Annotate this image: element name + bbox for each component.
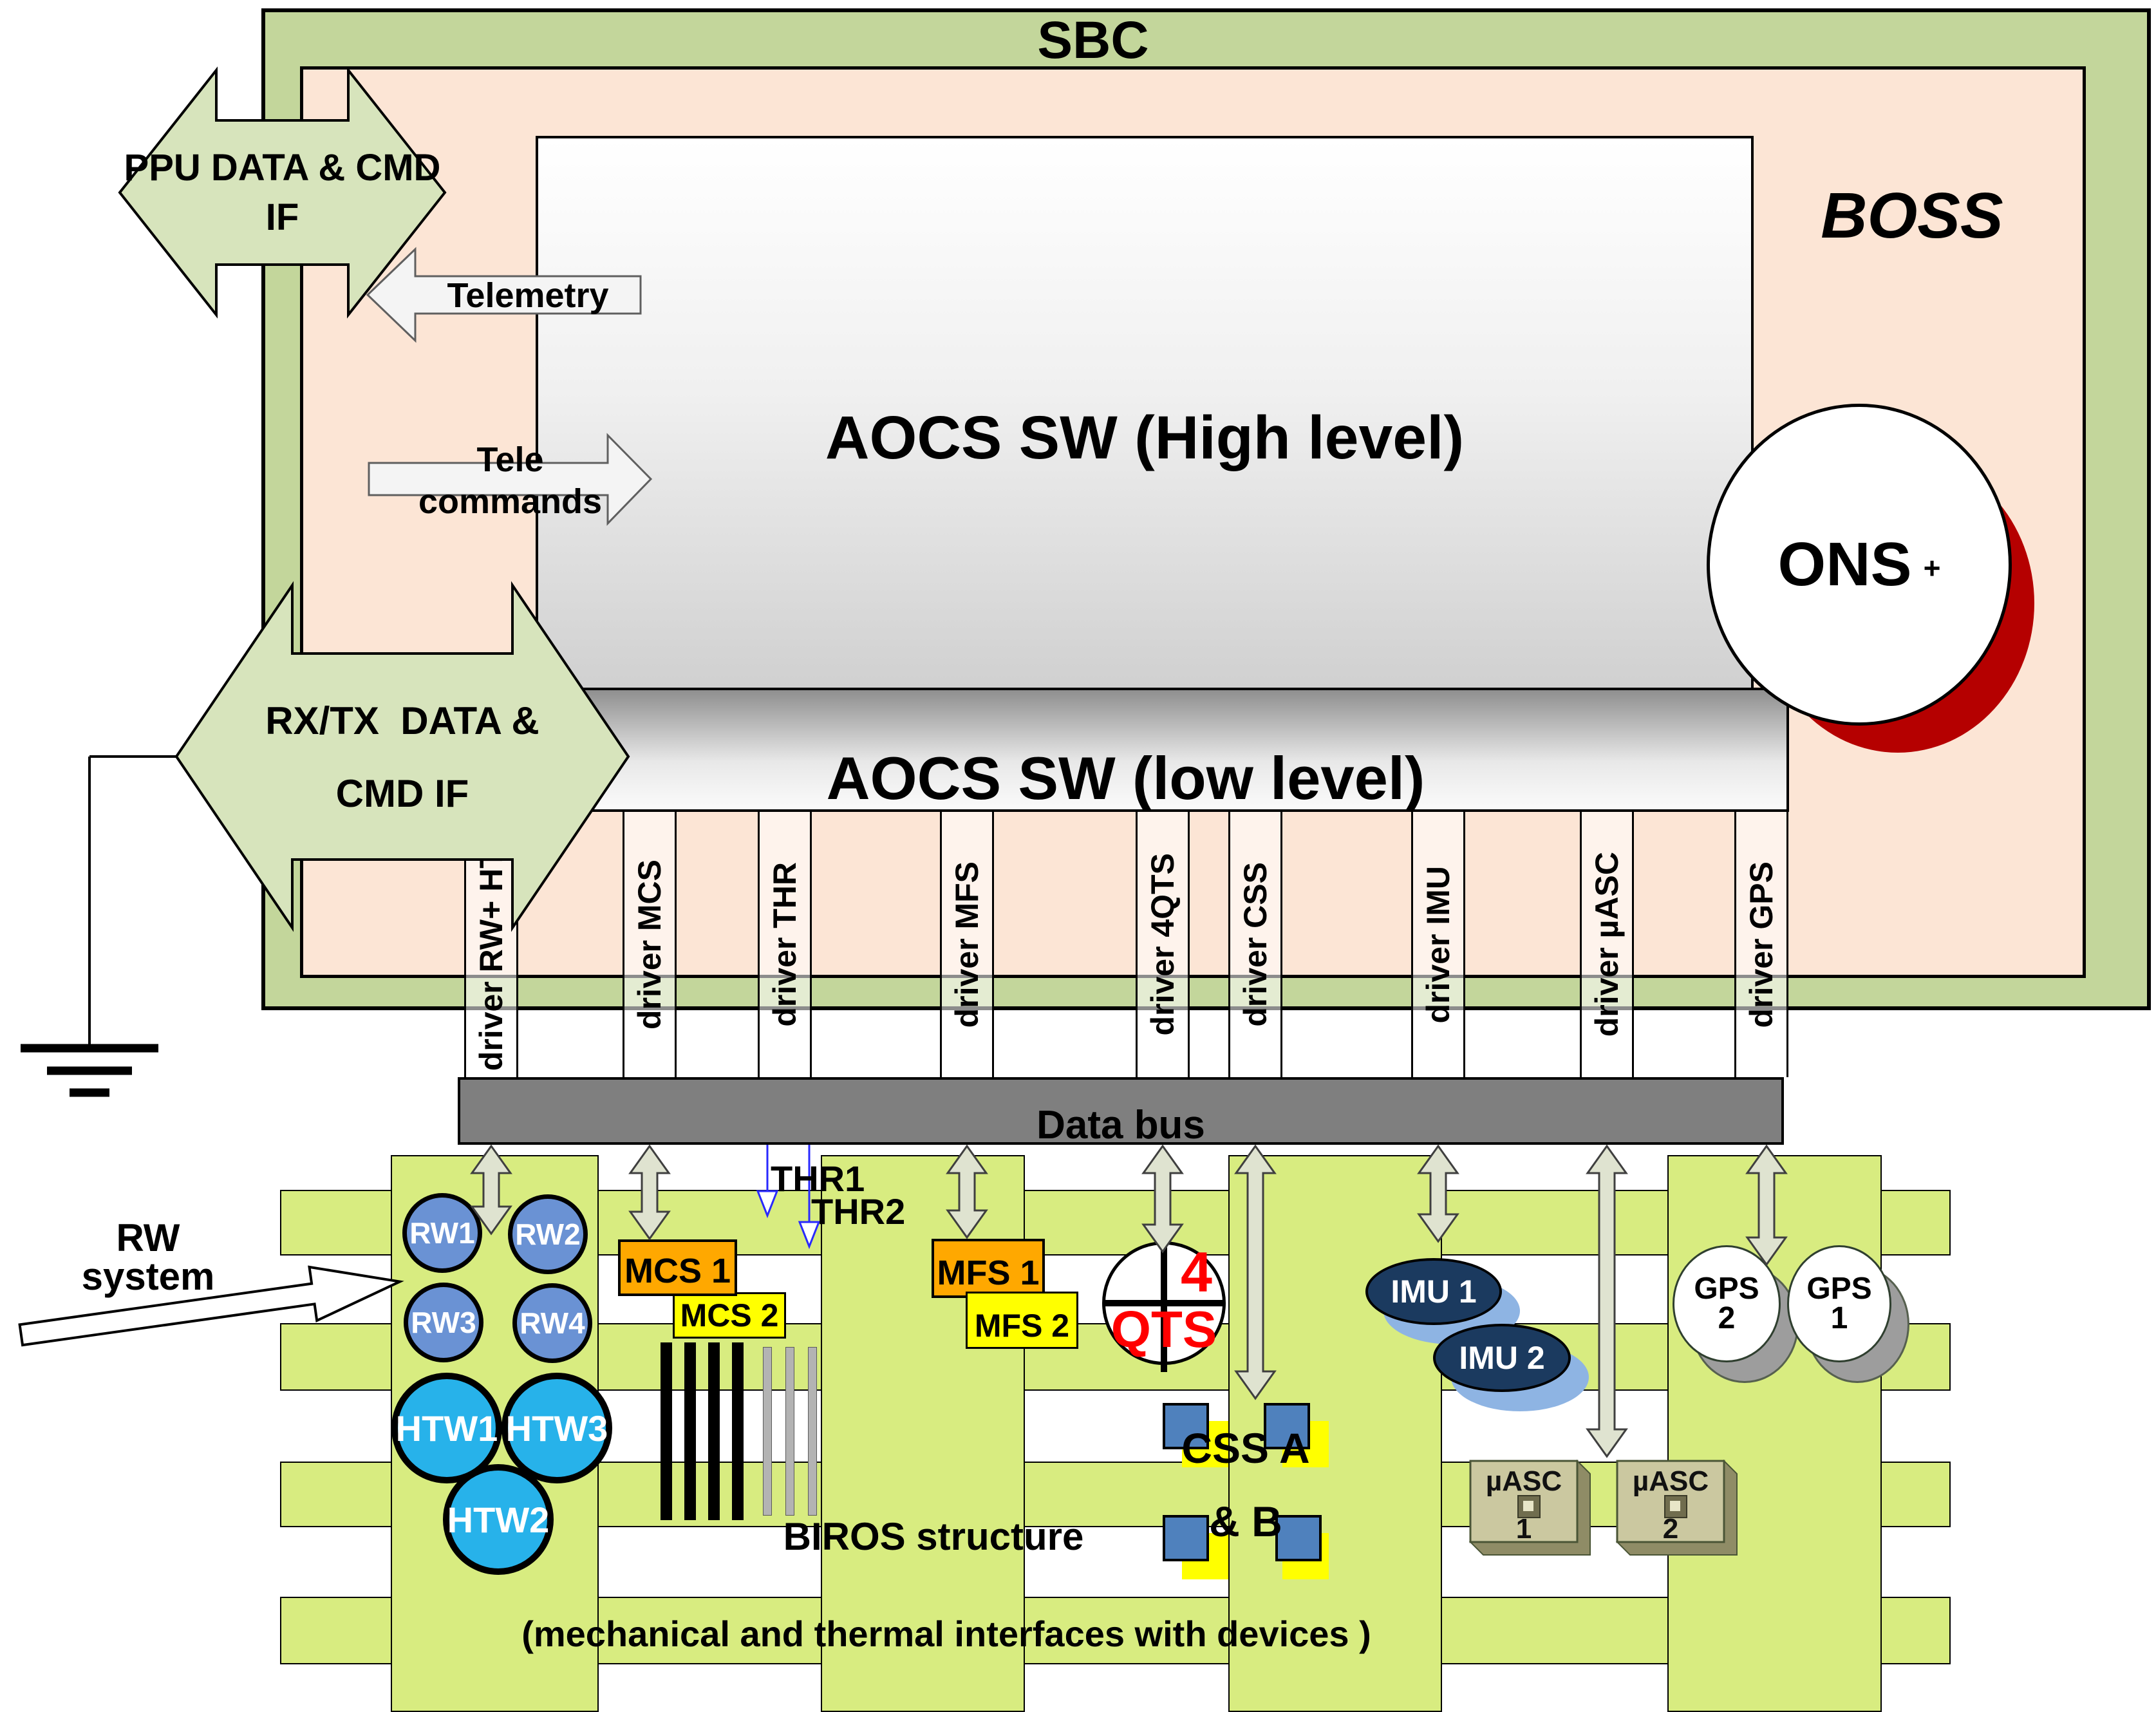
thruster-bar [661,1342,672,1520]
rw2-label: RW2 [515,1217,580,1252]
driver-column-imu: driver IMU [1411,812,1465,1077]
rw-system-line1: RW [117,1216,180,1259]
driver-label: driver CSS [1237,862,1274,1027]
thruster-bar-gray [763,1347,772,1516]
driver-column-css: driver CSS [1228,812,1282,1077]
rxtx-if-label-line2: CMD IF [193,771,612,816]
driver-label: driver IMU [1420,866,1457,1024]
imu2-label: IMU 2 [1459,1339,1544,1377]
ons-plus: + [1924,550,1941,585]
imu2-sensor: IMU 2 [1433,1324,1571,1392]
aocs-sw-high-level-label: AOCS SW (High level) [536,403,1754,473]
rw-system-label: RWsystem [71,1219,225,1296]
driver-label: driver THR [766,862,803,1027]
rw4-label: RW4 [520,1306,585,1340]
data-bus-label: Data bus [458,1102,1784,1148]
thruster-bar-gray [808,1347,817,1516]
thruster-bar [684,1342,696,1520]
mcs2-label: MCS 2 [680,1297,779,1334]
uasc2-number: 2 [1663,1513,1678,1545]
bus-arrow-rw [471,1145,512,1235]
telemetry-label: Telemetry [415,276,641,315]
imu1-label: IMU 1 [1391,1273,1476,1310]
bus-arrow-css [1235,1145,1276,1400]
telecommands-label-line1: Tele [399,440,621,480]
driver-label: driver µASC [1588,852,1626,1037]
bus-arrow-gps [1746,1145,1787,1266]
gps1-label: GPS [1806,1274,1871,1304]
biros-structure-label: BIROS structure [734,1514,1133,1559]
gps2-number: 2 [1718,1304,1736,1333]
driver-column-thr: driver THR [758,812,812,1077]
ons-circle: ONS + [1707,404,2012,726]
uasc1-number: 1 [1516,1513,1532,1545]
htw1-label: HTW1 [396,1407,498,1449]
rxtx-if-label-line1: RX/TX DATA & [193,699,612,743]
driver-label: driver GPS [1743,861,1780,1028]
mfs2-label: MFS 2 [975,1307,1069,1344]
driver-column-uasc: driver µASC [1580,812,1634,1077]
ons-label: ONS [1778,529,1912,600]
rw3-wheel: RW3 [404,1283,483,1362]
rxtx-if-arrow [176,585,628,928]
ppu-if-label-line2: IF [120,196,445,240]
bus-arrow-4qts [1142,1145,1183,1253]
boss-title: BOSS [1783,179,2041,253]
rw-system-line2: system [82,1255,215,1298]
qts-count: 4 [1181,1239,1212,1305]
thruster-bar [732,1342,744,1520]
css-label-line1: CSS A [1152,1424,1339,1473]
css-label-line2: & B [1172,1498,1320,1547]
aocs-sw-low-level-label: AOCS SW (low level) [462,744,1789,813]
thruster-bar [708,1342,720,1520]
rw1-label: RW1 [409,1216,474,1250]
uasc1-startracker: µASC 1 [1469,1460,1591,1556]
bus-arrow-mcs [629,1145,670,1240]
uasc2-startracker: µASC 2 [1616,1460,1738,1556]
imu1-sensor: IMU 1 [1365,1258,1502,1325]
ppu-if-label-line1: PPU DATA & CMD [120,147,445,190]
thruster-bar-gray [785,1347,794,1516]
qts-sensor: 4 QTS [1102,1241,1226,1365]
driver-label: driver MCS [631,860,668,1030]
rw2-wheel: RW2 [508,1194,588,1274]
driver-column-4qts: driver 4QTS [1136,812,1190,1077]
htw2-label: HTW2 [447,1499,550,1541]
htw2-wheel: HTW2 [443,1464,554,1575]
bus-arrow-uasc [1586,1145,1627,1458]
thr2-label: THR2 [811,1191,953,1232]
driver-label: driver 4QTS [1144,853,1181,1035]
uasc2-aperture-glint [1670,1501,1680,1511]
mcs1-label: MCS 1 [624,1251,731,1291]
ground-symbol [13,747,187,1107]
biros-mechanical-label: (mechanical and thermal interfaces with … [464,1613,1429,1655]
rw4-wheel: RW4 [512,1283,592,1363]
gps2-label: GPS [1694,1274,1759,1304]
mcs2-box: MCS 2 [673,1292,786,1339]
bus-arrow-imu [1418,1145,1459,1243]
sbc-title: SBC [900,10,1286,71]
rw3-label: RW3 [411,1305,476,1340]
driver-column-gps: driver GPS [1734,812,1788,1077]
telecommands-label-line2: commands [399,482,621,522]
htw3-label: HTW3 [506,1407,608,1449]
mfs1-box: MFS 1 [932,1239,1045,1298]
gps1-receiver: GPS 1 [1787,1245,1891,1362]
driver-column-mcs: driver MCS [623,812,677,1077]
uasc2-label: µASC [1633,1465,1709,1497]
driver-label: driver MFS [948,861,986,1028]
gps1-number: 1 [1831,1304,1848,1333]
driver-column-mfs: driver MFS [940,812,994,1077]
aocs-architecture-diagram: SBC BOSS AOCS SW (High level) AOCS SW (l… [0,0,2156,1712]
htw3-wheel: HTW3 [502,1373,612,1483]
mfs1-label: MFS 1 [937,1253,1039,1293]
uasc1-label: µASC [1486,1465,1562,1497]
qts-label: QTS [1105,1300,1223,1359]
mfs2-box: MFS 2 [966,1292,1078,1349]
mcs1-box: MCS 1 [618,1239,737,1296]
uasc1-aperture-glint [1523,1501,1533,1511]
